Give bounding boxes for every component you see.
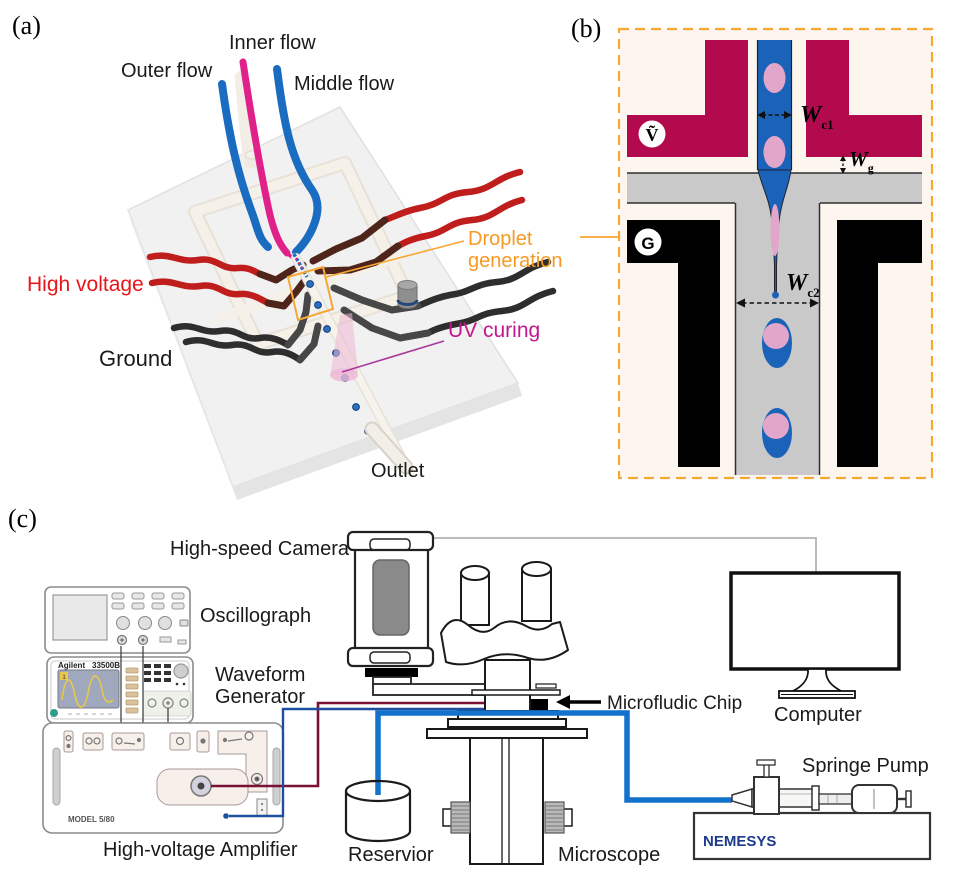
outer-flow-label: Outer flow (121, 60, 213, 82)
ground-symbol: G (641, 234, 654, 253)
voltage-badge: Ṽ (639, 121, 666, 148)
microscope-base (470, 738, 543, 864)
power-button (50, 709, 58, 717)
panel-a: (a) Inner flow Outer flow Middle flow Hi… (12, 11, 619, 500)
waveform-generator: Agilent 33500B 1 (47, 657, 193, 723)
figure-root: (a) Inner flow Outer flow Middle flow Hi… (0, 0, 955, 879)
amplifier-handle-left (53, 748, 60, 805)
slide-holder (472, 690, 560, 695)
waveform-label-2: Generator (215, 686, 305, 708)
ground-terminal (223, 813, 229, 819)
plunger-rod (819, 794, 853, 804)
middle-flow-label: Middle flow (294, 73, 395, 95)
panel-b-tag: (b) (571, 14, 601, 43)
amplifier-label: High-voltage Amplifier (103, 839, 298, 861)
oscillograph-label: Oscillograph (200, 605, 311, 627)
uv-curing-label: UV curing (448, 319, 540, 342)
generator-outputs (143, 691, 191, 716)
wc1-sub: c1 (821, 117, 833, 132)
microfluidic-chip (531, 699, 548, 710)
droplet-core (764, 63, 786, 93)
camera-mount (365, 668, 418, 677)
microscope-label: Microscope (558, 844, 660, 866)
focus-knob-right (545, 802, 572, 833)
plunger-flange (812, 786, 819, 810)
amplifier-handle-right (273, 748, 280, 805)
electrode-post (398, 281, 417, 309)
inner-flow-label: Inner flow (229, 32, 316, 54)
syringe-nozzle (732, 789, 752, 807)
chip-label: Microfludic Chip (607, 693, 742, 714)
wg-main: W (849, 147, 869, 171)
amplifier-socket (257, 799, 267, 816)
eyepieces (461, 562, 551, 625)
microscope-head (441, 620, 568, 664)
droplet-generation-label-2: generation (468, 250, 563, 272)
panel-a-tag: (a) (12, 11, 41, 40)
panel-c: (c) (8, 504, 930, 866)
pump-brand: NEMESYS (703, 833, 776, 850)
jet-core (771, 204, 780, 256)
outlet-label: Outlet (371, 460, 425, 482)
droplet-generation-label-1: Droplet (468, 228, 533, 250)
waveform-label-1: Waveform (215, 664, 305, 686)
wc2-main: W (786, 270, 809, 296)
chip-pointer (556, 695, 601, 709)
camera-cable (431, 538, 816, 574)
panel-b: Ṽ G Wc1 Wg Wc2 (b) (571, 14, 932, 478)
waveform-brand: Agilent (58, 661, 85, 670)
ground-badge: G (635, 229, 662, 256)
voltage-symbol: Ṽ (646, 124, 659, 145)
focus-knob-left (443, 802, 470, 833)
computer-label: Computer (774, 704, 862, 726)
camera-label: High-speed Camera (170, 538, 350, 560)
wc2-sub: c2 (807, 285, 819, 300)
ground-label: Ground (99, 346, 172, 371)
waveform-model: 33500B (92, 661, 120, 670)
wg-sub: g (868, 161, 874, 175)
figure-canvas: (a) Inner flow Outer flow Middle flow Hi… (0, 0, 955, 879)
generator-knob (174, 664, 188, 678)
syringe-clamp (754, 777, 779, 814)
panel-c-tag: (c) (8, 504, 37, 533)
waveform-channel: 1 (62, 674, 66, 681)
pump-label: Springe Pump (802, 755, 929, 777)
amplifier-model: MODEL 5/80 (68, 815, 115, 824)
microscope-column (485, 660, 530, 712)
high-voltage-label: High voltage (27, 273, 144, 296)
reservoir-label: Reservior (348, 844, 434, 866)
wc1-main: W (800, 102, 823, 128)
oscillograph (45, 587, 190, 653)
computer-monitor (731, 573, 899, 698)
droplet-core (764, 136, 786, 168)
camera-sensor (373, 560, 409, 635)
oscillograph-screen (53, 595, 107, 640)
